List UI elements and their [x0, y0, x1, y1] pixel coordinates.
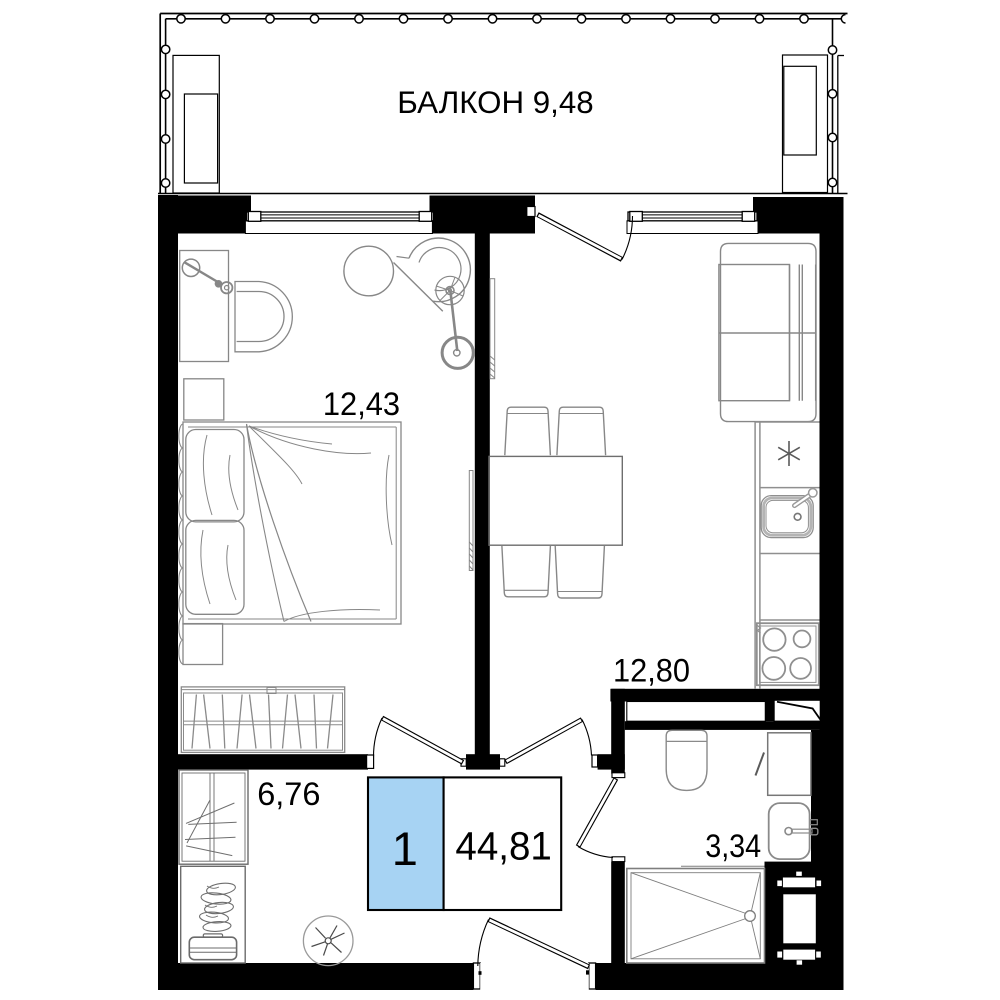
svg-text:44,81: 44,81 [455, 824, 552, 868]
svg-text:12,43: 12,43 [323, 386, 400, 422]
svg-text:6,76: 6,76 [257, 776, 320, 812]
svg-text:3,34: 3,34 [705, 828, 761, 864]
svg-text:БАЛКОН 9,48: БАЛКОН 9,48 [397, 85, 593, 120]
svg-text:1: 1 [392, 822, 418, 875]
svg-text:12,80: 12,80 [613, 653, 690, 689]
